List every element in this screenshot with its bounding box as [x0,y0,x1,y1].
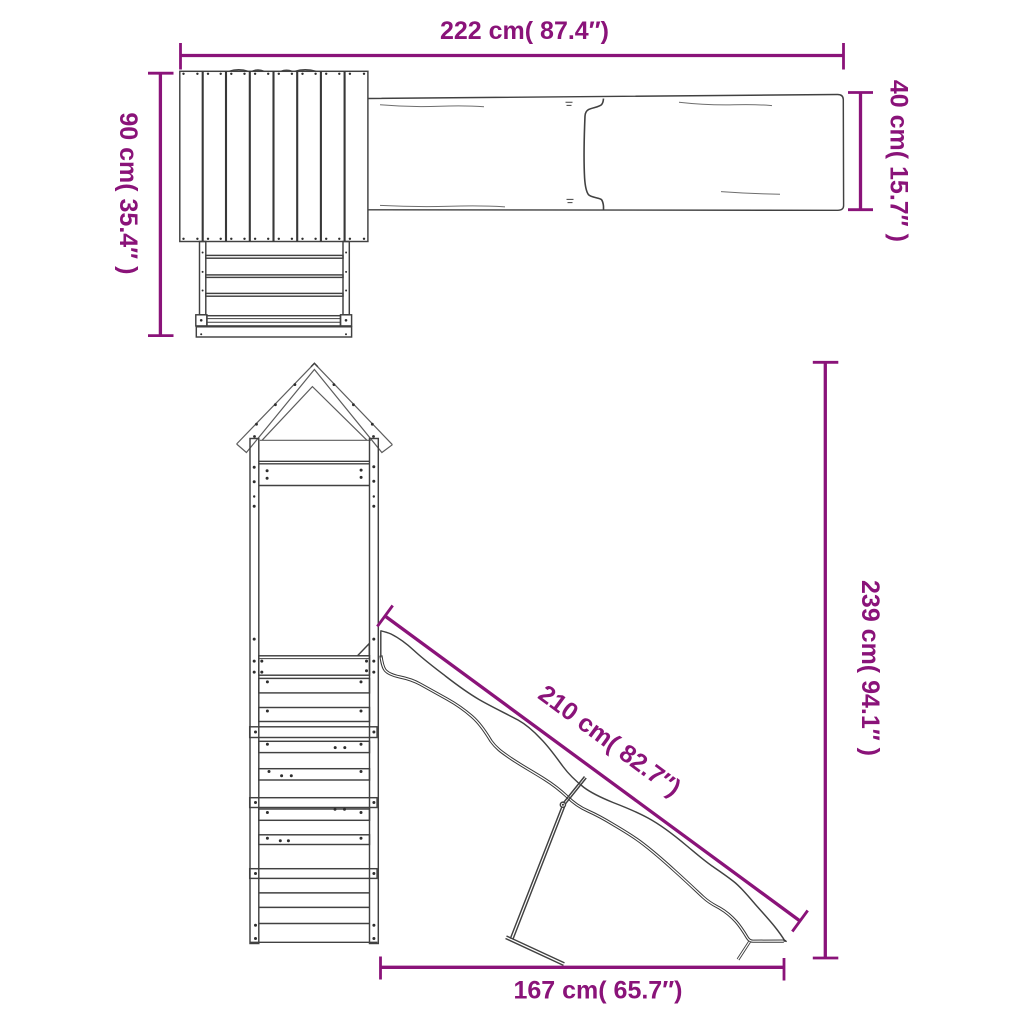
svg-text:90 cm( 35.4″ ): 90 cm( 35.4″ ) [114,112,142,274]
svg-text:40 cm( 15.7″ ): 40 cm( 15.7″ ) [884,80,912,242]
svg-text:167 cm( 65.7″): 167 cm( 65.7″) [513,976,682,1004]
svg-text:222 cm( 87.4″): 222 cm( 87.4″) [440,17,609,45]
svg-text:239 cm( 94.1″ ): 239 cm( 94.1″ ) [856,580,884,756]
